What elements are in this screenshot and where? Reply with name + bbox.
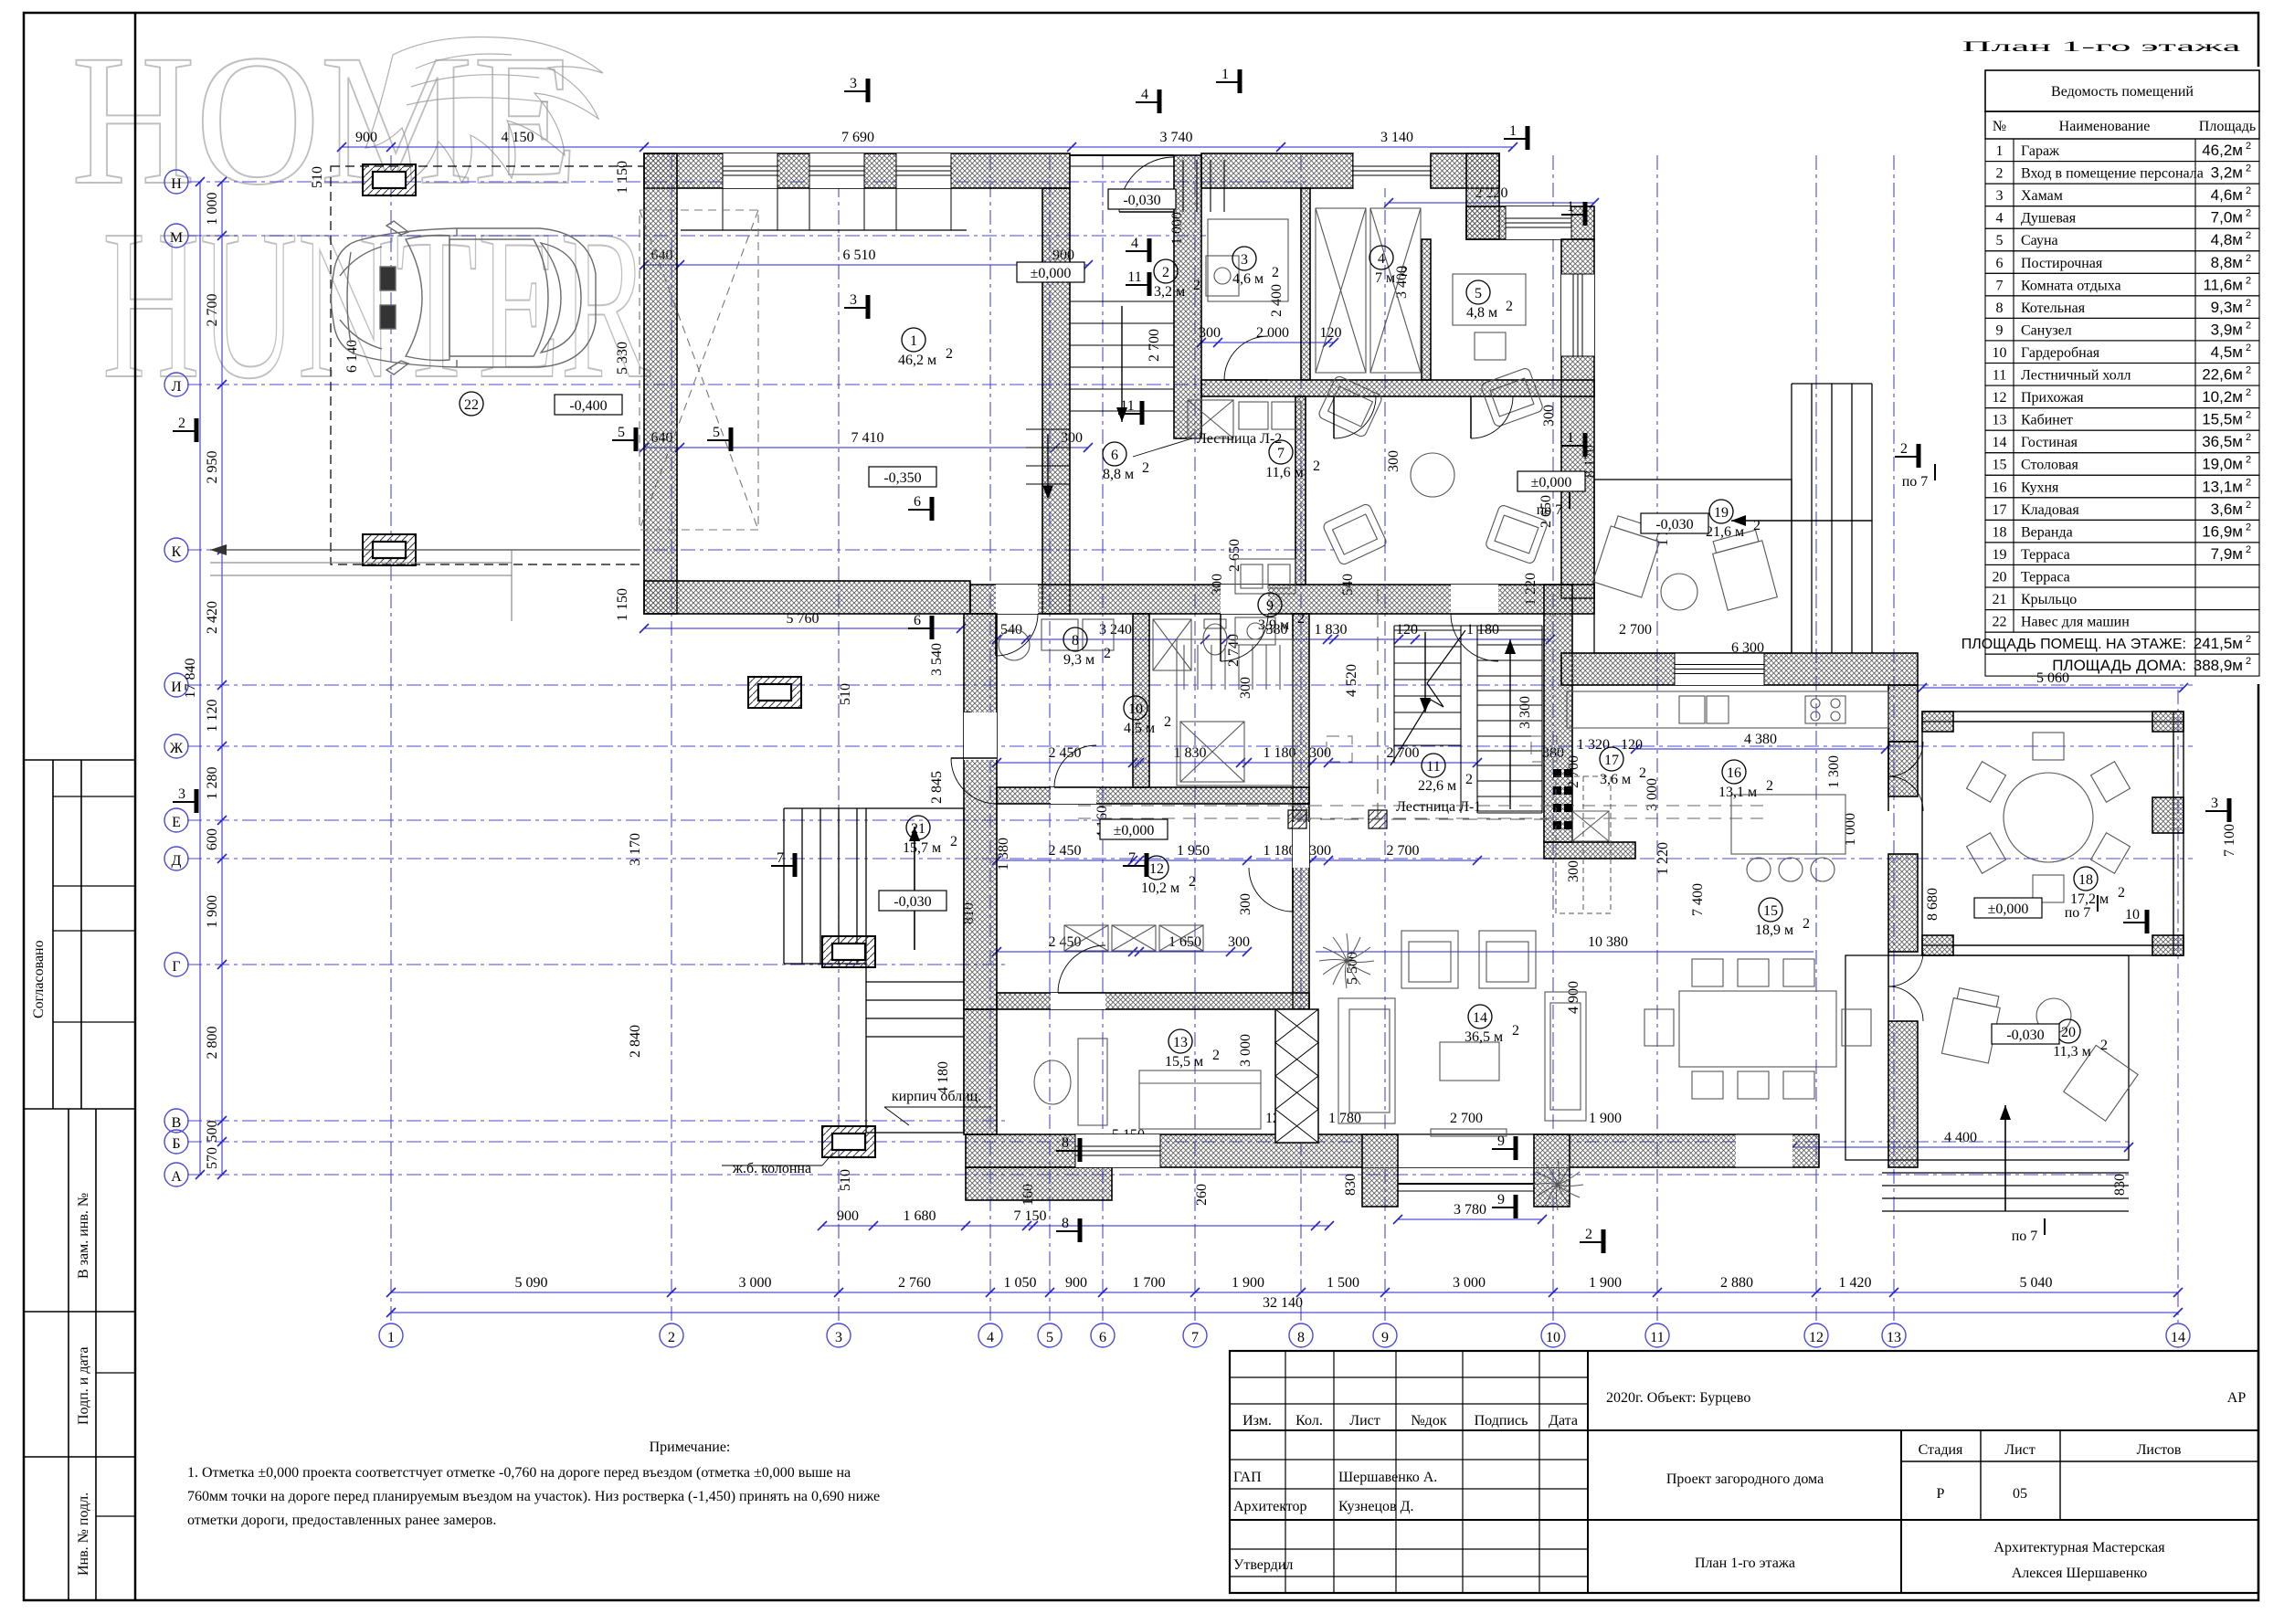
svg-text:9,3 м: 9,3 м: [1063, 652, 1094, 668]
svg-text:5: 5: [1475, 286, 1482, 301]
svg-text:2: 2: [2246, 365, 2251, 376]
svg-text:1 680: 1 680: [904, 1208, 936, 1224]
svg-text:1 120: 1 120: [205, 700, 220, 733]
svg-text:830: 830: [2112, 1174, 2128, 1196]
svg-text:2: 2: [2246, 500, 2251, 511]
svg-text:АР: АР: [2227, 1390, 2247, 1406]
svg-text:по 7: по 7: [1902, 474, 1929, 490]
svg-text:9: 9: [1266, 598, 1274, 614]
svg-text:3 780: 3 780: [1454, 1202, 1486, 1218]
svg-text:ж.б. колонна: ж.б. колонна: [732, 1161, 811, 1176]
svg-text:13: 13: [1993, 413, 2007, 428]
svg-text:2: 2: [2246, 455, 2251, 466]
svg-text:2: 2: [2246, 163, 2251, 174]
svg-text:1 220: 1 220: [1655, 842, 1671, 875]
svg-text:13,1 м: 13,1 м: [1718, 785, 1757, 800]
svg-text:Комната отдыха: Комната отдыха: [2021, 278, 2121, 293]
svg-text:4,6 м: 4,6 м: [1232, 271, 1264, 287]
svg-text:18: 18: [1993, 524, 2007, 540]
svg-text:46,2м: 46,2м: [2202, 142, 2243, 159]
svg-text:300: 300: [1566, 860, 1581, 882]
svg-text:16,9м: 16,9м: [2202, 522, 2243, 540]
svg-text:Стадия: Стадия: [1919, 1442, 1963, 1458]
svg-text:2: 2: [2246, 387, 2251, 398]
svg-text:HUNTER: HUNTER: [102, 185, 650, 423]
svg-text:2 840: 2 840: [628, 1025, 643, 1058]
svg-text:2: 2: [1193, 278, 1200, 293]
svg-text:3 300: 3 300: [1517, 696, 1533, 729]
svg-text:Е: Е: [172, 815, 181, 830]
svg-text:Г: Г: [172, 959, 180, 975]
svg-text:3,2м: 3,2м: [2211, 164, 2243, 182]
svg-text:2020г. Объект: Бурцево: 2020г. Объект: Бурцево: [1606, 1390, 1750, 1406]
svg-text:260: 260: [1194, 1184, 1210, 1206]
svg-text:1 500: 1 500: [1327, 1275, 1359, 1291]
svg-text:510: 510: [838, 683, 853, 705]
svg-text:2 700: 2 700: [1450, 1111, 1483, 1126]
svg-text:15: 15: [1763, 903, 1778, 919]
svg-text:11: 11: [1650, 1330, 1664, 1345]
svg-text:3,2 м: 3,2 м: [1154, 284, 1185, 300]
svg-text:3,6 м: 3,6 м: [1600, 772, 1631, 787]
svg-text:Кабинет: Кабинет: [2021, 413, 2073, 428]
svg-text:3 000: 3 000: [739, 1275, 772, 1291]
svg-text:2: 2: [1162, 265, 1169, 280]
svg-text:2: 2: [1313, 459, 1320, 474]
svg-text:11: 11: [1426, 759, 1440, 775]
svg-text:ПЛОЩАДЬ ДОМА:: ПЛОЩАДЬ ДОМА:: [2052, 657, 2186, 674]
svg-text:1 180: 1 180: [1264, 745, 1296, 761]
svg-text:15,5м: 15,5м: [2202, 411, 2243, 428]
svg-text:2: 2: [178, 416, 185, 431]
svg-text:6: 6: [1111, 448, 1118, 463]
svg-text:1 950: 1 950: [1177, 843, 1210, 859]
svg-text:№: №: [1993, 119, 2006, 134]
svg-text:Ведомость помещений: Ведомость помещений: [2051, 84, 2194, 100]
svg-text:Инв. № подл.: Инв. № подл.: [76, 1492, 91, 1576]
svg-text:2: 2: [2246, 230, 2251, 241]
svg-text:Душевая: Душевая: [2021, 211, 2077, 227]
svg-text:Б: Б: [172, 1136, 180, 1152]
svg-text:5 330: 5 330: [615, 342, 630, 374]
svg-text:2 420: 2 420: [205, 601, 220, 634]
svg-text:19: 19: [1993, 547, 2007, 563]
svg-text:А: А: [171, 1169, 182, 1185]
svg-text:Хамам: Хамам: [2021, 188, 2063, 204]
svg-text:8,8м: 8,8м: [2211, 254, 2243, 271]
svg-text:2 400: 2 400: [1269, 284, 1285, 317]
svg-text:8: 8: [1072, 633, 1079, 649]
svg-text:4,5м: 4,5м: [2211, 343, 2243, 361]
svg-text:32 140: 32 140: [1263, 1295, 1303, 1311]
svg-text:1 900: 1 900: [205, 895, 220, 928]
svg-text:5 090: 5 090: [515, 1275, 548, 1291]
svg-text:Площадь: Площадь: [2199, 119, 2256, 134]
svg-text:Шершавенко А.: Шершавенко А.: [1338, 1470, 1437, 1485]
svg-text:11,6м: 11,6м: [2203, 276, 2243, 293]
svg-text:46,2 м: 46,2 м: [898, 353, 936, 368]
svg-text:Архитектурная Мастерская: Архитектурная Мастерская: [1993, 1540, 2165, 1555]
svg-text:10,2 м: 10,2 м: [1141, 881, 1179, 896]
svg-text:3,9 м: 3,9 м: [1258, 617, 1289, 633]
svg-text:17: 17: [1604, 753, 1619, 768]
svg-text:4: 4: [987, 1330, 994, 1345]
svg-text:Прихожая: Прихожая: [2021, 390, 2084, 406]
svg-text:6: 6: [914, 613, 921, 628]
svg-text:±0,000: ±0,000: [1988, 902, 2029, 917]
svg-text:241,5м: 241,5м: [2194, 635, 2243, 652]
svg-text:4: 4: [1996, 211, 2004, 227]
svg-text:2: 2: [1401, 264, 1408, 279]
svg-text:3: 3: [1241, 252, 1248, 268]
svg-text:8,8 м: 8,8 м: [1103, 467, 1134, 482]
svg-text:2: 2: [2246, 544, 2251, 555]
svg-text:Подп. и дата: Подп. и дата: [76, 1347, 91, 1425]
svg-text:10: 10: [1546, 1330, 1560, 1345]
svg-text:6: 6: [1996, 256, 2004, 271]
svg-text:3: 3: [850, 76, 857, 91]
svg-text:9: 9: [1497, 1192, 1505, 1207]
svg-text:2 880: 2 880: [1720, 1275, 1753, 1291]
svg-text:10 380: 10 380: [1588, 934, 1628, 950]
svg-text:2: 2: [2246, 410, 2251, 421]
svg-text:5: 5: [1996, 233, 2004, 248]
svg-text:2: 2: [1753, 518, 1761, 533]
svg-text:Навес для машин: Навес для машин: [2021, 615, 2130, 630]
svg-text:2: 2: [1212, 1048, 1220, 1063]
svg-text:6 510: 6 510: [843, 248, 876, 263]
svg-text:2: 2: [1104, 646, 1111, 661]
svg-text:3: 3: [850, 292, 857, 308]
svg-text:7,9м: 7,9м: [2211, 545, 2243, 563]
svg-text:900: 900: [355, 130, 377, 145]
svg-text:19: 19: [1714, 505, 1729, 521]
svg-text:4 900: 4 900: [1566, 981, 1581, 1014]
svg-text:10: 10: [2125, 907, 2140, 923]
svg-text:5 060: 5 060: [2036, 670, 2069, 686]
svg-text:2: 2: [1297, 611, 1305, 627]
svg-text:В: В: [172, 1115, 182, 1131]
svg-text:300: 300: [1309, 843, 1331, 859]
svg-text:11: 11: [1127, 269, 1141, 285]
svg-text:4,8 м: 4,8 м: [1466, 305, 1497, 321]
svg-text:2: 2: [946, 346, 953, 362]
svg-text:1 900: 1 900: [1232, 1275, 1264, 1291]
svg-text:22: 22: [464, 397, 479, 413]
svg-text:36,5 м: 36,5 м: [1465, 1029, 1503, 1045]
svg-text:Кладовая: Кладовая: [2021, 502, 2079, 518]
svg-text:7 м: 7 м: [1375, 270, 1395, 286]
svg-text:1 050: 1 050: [1004, 1275, 1037, 1291]
svg-text:Гараж: Гараж: [2021, 143, 2060, 159]
svg-text:-0,350: -0,350: [883, 470, 921, 486]
svg-text:Лист: Лист: [1349, 1413, 1380, 1429]
svg-text:9: 9: [1497, 1134, 1505, 1149]
svg-text:9: 9: [1381, 1330, 1389, 1345]
svg-text:1 900: 1 900: [1589, 1275, 1622, 1291]
svg-text:300: 300: [1386, 450, 1401, 472]
svg-text:ГАП: ГАП: [1233, 1470, 1262, 1485]
svg-text:6: 6: [1099, 1330, 1106, 1345]
svg-text:17: 17: [1993, 502, 2007, 518]
svg-text:2 845: 2 845: [929, 771, 945, 804]
svg-text:2 700: 2 700: [205, 294, 220, 327]
svg-text:17 840: 17 840: [183, 659, 198, 699]
svg-text:3 000: 3 000: [1453, 1275, 1486, 1291]
svg-text:Лестница Л-1: Лестница Л-1: [1396, 799, 1481, 815]
svg-text:2: 2: [1512, 1023, 1519, 1039]
svg-text:16: 16: [1993, 480, 2007, 495]
svg-text:2 700: 2 700: [1387, 745, 1420, 761]
svg-text:±0,000: ±0,000: [1031, 266, 1072, 281]
svg-text:5: 5: [713, 425, 720, 440]
svg-text:2: 2: [1996, 166, 2004, 182]
svg-text:11,3 м: 11,3 м: [2053, 1044, 2091, 1060]
svg-text:Изм.: Изм.: [1242, 1413, 1272, 1429]
svg-text:300: 300: [1228, 934, 1250, 950]
svg-text:2: 2: [1142, 460, 1149, 476]
svg-text:7: 7: [1128, 850, 1136, 866]
svg-text:-0,030: -0,030: [894, 894, 931, 910]
svg-text:05: 05: [2013, 1486, 2027, 1502]
svg-text:18,9 м: 18,9 м: [1755, 923, 1793, 938]
svg-text:Листов: Листов: [2137, 1442, 2182, 1458]
svg-text:300: 300: [1541, 405, 1557, 427]
svg-text:2: 2: [2246, 253, 2251, 264]
svg-text:2: 2: [2246, 343, 2251, 353]
svg-text:2 450: 2 450: [1049, 745, 1082, 761]
svg-text:8: 8: [1062, 1135, 1069, 1151]
svg-text:2: 2: [2246, 320, 2251, 331]
svg-text:3,9м: 3,9м: [2211, 321, 2243, 338]
svg-text:Алексея Шершавенко: Алексея Шершавенко: [2012, 1566, 2148, 1581]
svg-text:12: 12: [1809, 1330, 1824, 1345]
svg-text:2 760: 2 760: [898, 1275, 931, 1291]
svg-text:300: 300: [1238, 677, 1253, 699]
svg-text:Терраса: Терраса: [2021, 569, 2070, 585]
svg-text:11: 11: [1120, 398, 1134, 414]
svg-text:Лист: Лист: [2004, 1442, 2036, 1458]
svg-text:15,7 м: 15,7 м: [903, 840, 941, 856]
svg-text:Примечание:: Примечание:: [650, 1439, 731, 1455]
svg-text:Постирочная: Постирочная: [2021, 256, 2103, 271]
svg-text:22,6м: 22,6м: [2202, 366, 2243, 384]
svg-text:8: 8: [1062, 1216, 1069, 1231]
svg-text:2: 2: [1585, 1227, 1592, 1242]
svg-text:4,6м: 4,6м: [2211, 186, 2243, 204]
svg-text:4 150: 4 150: [502, 130, 534, 145]
svg-text:3 540: 3 540: [929, 643, 945, 676]
svg-text:Наименование: Наименование: [2059, 119, 2151, 134]
svg-text:План 1-го этажа: План 1-го этажа: [1962, 39, 2241, 55]
svg-text:2: 2: [1900, 441, 1908, 457]
svg-text:2: 2: [1766, 778, 1773, 794]
svg-text:2 700: 2 700: [1387, 843, 1420, 859]
svg-text:ПЛОЩАДЬ ПОМЕЩ. НА ЭТАЖЕ:: ПЛОЩАДЬ ПОМЕЩ. НА ЭТАЖЕ:: [1961, 637, 2186, 652]
svg-text:7 410: 7 410: [851, 430, 884, 446]
svg-text:Н: Н: [171, 176, 182, 192]
svg-text:21,6 м: 21,6 м: [1706, 524, 1744, 540]
svg-text:Крыльцо: Крыльцо: [2021, 592, 2077, 607]
svg-text:3 240: 3 240: [1099, 622, 1132, 638]
svg-text:3 170: 3 170: [628, 833, 643, 866]
svg-text:10: 10: [1128, 701, 1143, 717]
svg-text:7: 7: [777, 850, 784, 866]
svg-text:Согласовано: Согласовано: [31, 940, 47, 1018]
svg-text:300: 300: [1238, 893, 1253, 915]
svg-text:10,2м: 10,2м: [2202, 388, 2243, 406]
svg-text:-0,030: -0,030: [1655, 517, 1693, 533]
svg-text:3: 3: [835, 1330, 842, 1345]
svg-text:13,1м: 13,1м: [2202, 478, 2243, 495]
svg-text:8: 8: [1297, 1330, 1305, 1345]
svg-text:19,0м: 19,0м: [2202, 456, 2243, 473]
svg-text:по 7: по 7: [2065, 905, 2091, 921]
svg-text:2: 2: [1272, 265, 1279, 280]
svg-text:1 320: 1 320: [1577, 737, 1610, 753]
svg-text:М: М: [170, 230, 183, 246]
svg-text:2: 2: [2100, 1038, 2108, 1053]
svg-text:Л: Л: [172, 379, 182, 395]
svg-text:2: 2: [2118, 885, 2125, 901]
svg-text:7: 7: [1277, 446, 1285, 461]
svg-text:Р: Р: [1937, 1486, 1945, 1502]
svg-text:Лестница Л-2: Лестница Л-2: [1197, 431, 1282, 447]
svg-text:К: К: [172, 544, 182, 560]
svg-text:4 520: 4 520: [1344, 664, 1359, 697]
svg-text:±0,000: ±0,000: [1531, 475, 1572, 490]
svg-text:В зам. инв. №: В зам. инв. №: [76, 1193, 91, 1279]
svg-text:2: 2: [2246, 298, 2251, 309]
svg-text:7 400: 7 400: [1690, 883, 1706, 916]
svg-text:Утвердил: Утвердил: [1233, 1557, 1293, 1573]
svg-text:13: 13: [1887, 1330, 1901, 1345]
svg-text:2: 2: [1506, 299, 1513, 314]
svg-text:2: 2: [2246, 522, 2251, 533]
svg-text:20: 20: [2061, 1025, 2076, 1040]
svg-text:1 830: 1 830: [1174, 745, 1207, 761]
svg-text:Архитектор: Архитектор: [1233, 1499, 1307, 1514]
svg-text:5: 5: [618, 425, 625, 440]
svg-text:1 280: 1 280: [205, 767, 220, 800]
svg-text:2 950: 2 950: [205, 451, 220, 484]
svg-text:120: 120: [1320, 325, 1342, 341]
svg-text:И: И: [171, 680, 182, 695]
svg-text:21: 21: [1993, 592, 2007, 607]
svg-text:Санузел: Санузел: [2021, 322, 2072, 338]
svg-text:1 700: 1 700: [1133, 1275, 1166, 1291]
svg-text:Лестничный холл: Лестничный холл: [2021, 368, 2131, 384]
svg-text:4: 4: [1141, 87, 1148, 102]
svg-text:2: 2: [1189, 874, 1196, 890]
svg-text:4,8м: 4,8м: [2211, 231, 2243, 248]
svg-text:760мм точки на дороге перед пл: 760мм точки на дороге перед планируемым …: [187, 1489, 880, 1504]
svg-text:1 420: 1 420: [1839, 1275, 1872, 1291]
svg-text:7 150: 7 150: [1014, 1208, 1047, 1224]
svg-text:Д: Д: [172, 853, 182, 869]
svg-text:11: 11: [1993, 368, 2006, 384]
svg-text:3 140: 3 140: [1380, 130, 1413, 145]
svg-text:2 700: 2 700: [1619, 622, 1652, 638]
svg-text:22: 22: [1993, 615, 2007, 630]
svg-text:1: 1: [387, 1330, 395, 1345]
svg-text:1 000: 1 000: [205, 193, 220, 226]
svg-text:500: 500: [205, 1121, 220, 1143]
svg-text:1: 1: [910, 333, 917, 349]
svg-text:2: 2: [2246, 634, 2251, 645]
svg-text:2: 2: [2246, 208, 2251, 219]
svg-text:6: 6: [914, 494, 921, 510]
svg-text:1: 1: [1509, 123, 1517, 139]
svg-text:2: 2: [1639, 765, 1646, 781]
svg-text:3 000: 3 000: [1238, 1034, 1253, 1067]
svg-text:Сауна: Сауна: [2021, 233, 2058, 248]
svg-text:2 800: 2 800: [205, 1027, 220, 1060]
svg-text:Кухня: Кухня: [2021, 480, 2059, 495]
svg-text:План 1-го этажа: План 1-го этажа: [1695, 1555, 1795, 1571]
svg-text:Кол.: Кол.: [1295, 1413, 1323, 1429]
svg-text:№док: №док: [1411, 1413, 1446, 1429]
svg-text:Проект загородного дома: Проект загородного дома: [1666, 1471, 1824, 1487]
svg-text:4: 4: [1378, 251, 1385, 267]
svg-text:1 180: 1 180: [1264, 843, 1296, 859]
svg-text:отметки дороги, предоставленны: отметки дороги, предоставленных ранее за…: [187, 1513, 496, 1528]
svg-text:2 450: 2 450: [1049, 843, 1082, 859]
svg-text:2: 2: [2246, 656, 2251, 667]
svg-text:120: 120: [1621, 737, 1643, 753]
svg-text:Подпись: Подпись: [1475, 1413, 1528, 1429]
svg-text:510: 510: [310, 166, 325, 188]
svg-text:5: 5: [1046, 1330, 1053, 1345]
svg-text:14: 14: [1473, 1010, 1487, 1026]
svg-text:Кузнецов Д.: Кузнецов Д.: [1338, 1499, 1413, 1514]
svg-text:3: 3: [2211, 796, 2218, 811]
svg-text:3,6м: 3,6м: [2211, 501, 2243, 518]
svg-text:2: 2: [2246, 275, 2251, 286]
svg-text:8: 8: [1996, 301, 2004, 316]
svg-text:8 680: 8 680: [1925, 888, 1940, 921]
svg-text:1. Отметка ±0,000 проекта соот: 1. Отметка ±0,000 проекта соответстчует …: [187, 1465, 851, 1481]
svg-text:900: 900: [837, 1208, 859, 1224]
svg-text:1: 1: [1996, 143, 2004, 159]
svg-text:Веранда: Веранда: [2021, 524, 2073, 540]
svg-text:4,5 м: 4,5 м: [1124, 721, 1155, 736]
svg-text:13: 13: [1173, 1035, 1188, 1050]
svg-text:по 7: по 7: [1537, 502, 1563, 518]
svg-text:2: 2: [950, 834, 957, 849]
svg-text:15,5 м: 15,5 м: [1165, 1054, 1203, 1070]
svg-text:Котельная: Котельная: [2021, 301, 2086, 316]
svg-text:-0,400: -0,400: [569, 398, 607, 414]
svg-text:36,5м: 36,5м: [2202, 433, 2243, 450]
svg-text:1 900: 1 900: [1589, 1111, 1622, 1126]
svg-text:1 150: 1 150: [615, 588, 630, 621]
svg-text:2: 2: [668, 1330, 675, 1345]
svg-text:Ж: Ж: [170, 741, 184, 756]
svg-text:2: 2: [2246, 477, 2251, 488]
svg-text:Вход в помещение персонала: Вход в помещение персонала: [2021, 166, 2204, 182]
svg-text:10: 10: [1993, 345, 2007, 361]
svg-text:5 040: 5 040: [2020, 1275, 2053, 1291]
svg-text:20: 20: [1993, 569, 2007, 585]
svg-text:кирпич облиц.: кирпич облиц.: [892, 1089, 981, 1104]
svg-text:1: 1: [1221, 67, 1229, 82]
svg-text:1 380: 1 380: [996, 838, 1011, 870]
svg-text:12: 12: [1993, 390, 2007, 406]
svg-text:-0,030: -0,030: [2006, 1028, 2044, 1043]
svg-text:±0,000: ±0,000: [1114, 823, 1155, 838]
svg-text:6 140: 6 140: [344, 340, 360, 373]
